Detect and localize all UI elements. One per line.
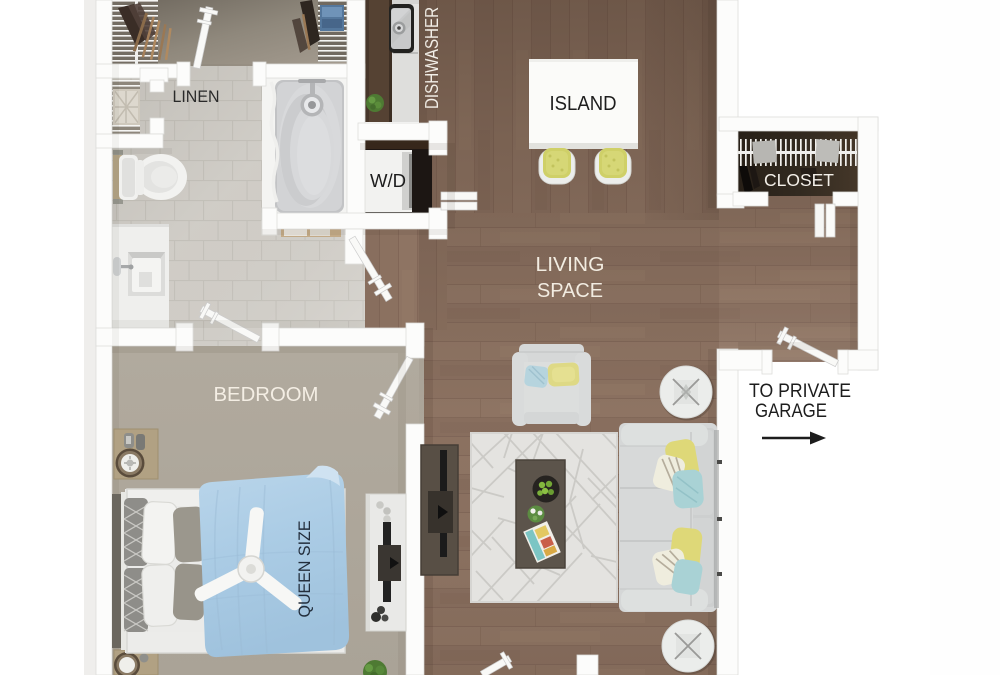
svg-text:GARAGE: GARAGE [755,401,827,422]
svg-text:LIVING: LIVING [536,253,605,276]
svg-text:QUEEN SIZE: QUEEN SIZE [296,521,314,618]
svg-text:TO PRIVATE: TO PRIVATE [749,381,851,402]
svg-text:ISLAND: ISLAND [550,93,617,115]
svg-text:LINEN: LINEN [173,87,220,106]
svg-text:BEDROOM: BEDROOM [214,383,319,406]
svg-text:CLOSET: CLOSET [764,170,834,190]
svg-text:SPACE: SPACE [537,279,603,302]
svg-text:W/D: W/D [370,171,406,191]
